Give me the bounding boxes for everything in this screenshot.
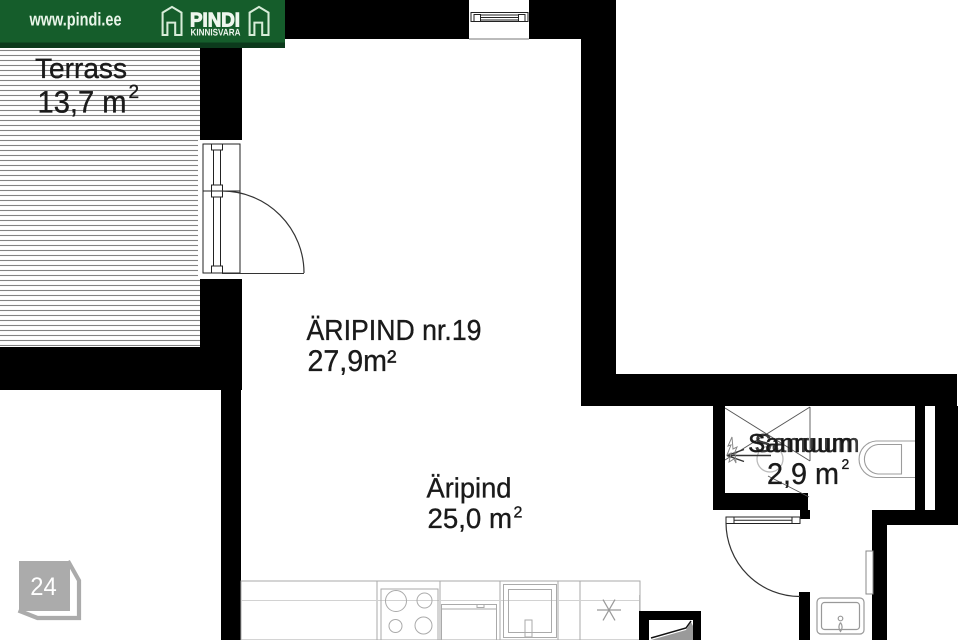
svg-text:13,7 m: 13,7 m [38, 85, 127, 120]
svg-text:2: 2 [129, 82, 140, 103]
svg-text:Terrass: Terrass [35, 53, 127, 84]
svg-text:2: 2 [514, 505, 523, 522]
svg-text:Äripind: Äripind [427, 473, 512, 504]
svg-text:25,0 m: 25,0 m [428, 503, 513, 534]
svg-text:ÄRIPIND nr.19: ÄRIPIND nr.19 [307, 315, 482, 347]
svg-text:27,9m²: 27,9m² [308, 345, 397, 378]
svg-text:24: 24 [30, 573, 57, 601]
svg-text:Sanruum: Sanruum [755, 428, 860, 458]
svg-text:2: 2 [842, 456, 850, 472]
svg-text:KINNISVARA: KINNISVARA [191, 27, 241, 38]
svg-text:www.pindi.ee: www.pindi.ee [29, 8, 122, 29]
svg-text:2,9 m: 2,9 m [767, 458, 839, 491]
